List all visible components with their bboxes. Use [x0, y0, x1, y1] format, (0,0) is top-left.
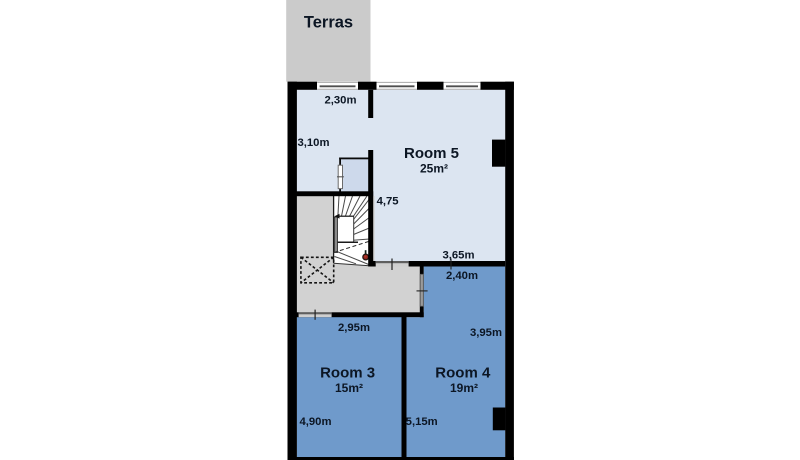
svg-text:Terras: Terras — [304, 14, 353, 32]
svg-text:3,10m: 3,10m — [297, 137, 329, 149]
svg-text:4,75: 4,75 — [377, 196, 399, 208]
svg-text:19m²: 19m² — [450, 381, 478, 395]
svg-text:Room 3: Room 3 — [320, 365, 375, 382]
svg-text:2,40m: 2,40m — [446, 270, 478, 282]
svg-text:3,95m: 3,95m — [470, 327, 502, 339]
svg-text:2,95m: 2,95m — [338, 322, 370, 334]
svg-text:2,30m: 2,30m — [324, 95, 356, 107]
svg-text:Room 4: Room 4 — [435, 365, 491, 382]
svg-text:4,90m: 4,90m — [299, 416, 331, 428]
svg-text:Room 5: Room 5 — [404, 145, 459, 162]
svg-text:15m²: 15m² — [335, 381, 363, 395]
svg-text:25m²: 25m² — [420, 162, 448, 176]
svg-text:3,65m: 3,65m — [442, 249, 474, 261]
svg-text:5,15m: 5,15m — [406, 416, 438, 428]
